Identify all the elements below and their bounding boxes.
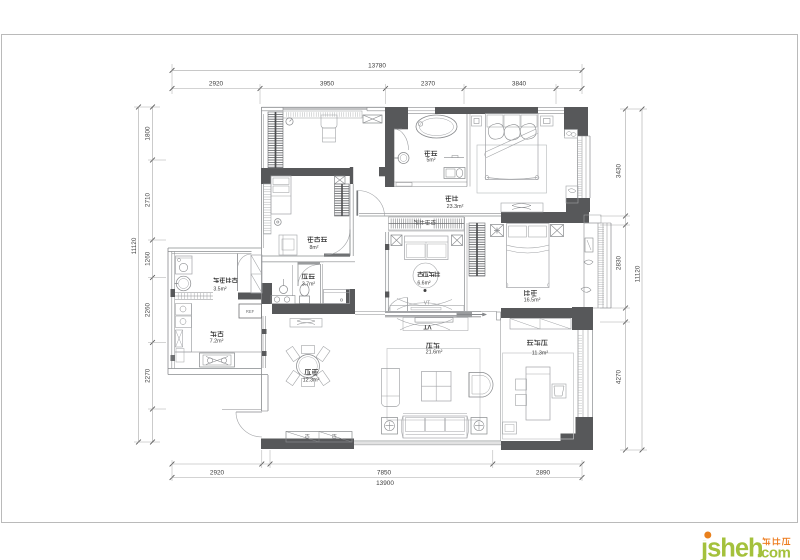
- svg-text:2830: 2830: [616, 255, 623, 270]
- svg-text:21.6m²: 21.6m²: [426, 350, 443, 356]
- svg-text:2920: 2920: [210, 470, 225, 477]
- svg-text:7.2m²: 7.2m²: [210, 339, 224, 345]
- svg-text:5m²: 5m²: [427, 158, 436, 164]
- svg-text:16.5m²: 16.5m²: [524, 298, 541, 304]
- svg-text:7850: 7850: [377, 470, 392, 477]
- svg-text:3840: 3840: [512, 81, 527, 88]
- svg-text:1260: 1260: [145, 251, 152, 266]
- svg-text:11120: 11120: [635, 265, 642, 282]
- svg-text:2890: 2890: [536, 470, 551, 477]
- svg-text:2270: 2270: [145, 368, 152, 383]
- svg-text:12.3m²: 12.3m²: [303, 378, 320, 384]
- svg-text:23.3m²: 23.3m²: [447, 204, 464, 210]
- svg-text:2710: 2710: [145, 192, 152, 207]
- svg-text:3.7m²: 3.7m²: [302, 282, 316, 288]
- svg-text:REF: REF: [246, 309, 255, 314]
- svg-text:6.6m²: 6.6m²: [417, 281, 431, 287]
- svg-text:2920: 2920: [209, 81, 224, 88]
- svg-text:com: com: [761, 545, 791, 560]
- svg-text:8m²: 8m²: [310, 245, 319, 251]
- svg-text:11.3m²: 11.3m²: [532, 351, 549, 357]
- svg-text:1800: 1800: [145, 126, 152, 141]
- svg-text:3950: 3950: [320, 81, 335, 88]
- svg-text:2370: 2370: [421, 81, 436, 88]
- svg-text:3430: 3430: [616, 163, 623, 178]
- svg-text:VT: VT: [424, 301, 430, 307]
- svg-text:13900: 13900: [376, 480, 394, 487]
- svg-text:4270: 4270: [616, 369, 623, 384]
- svg-text:2260: 2260: [145, 302, 152, 317]
- svg-text:3.5m²: 3.5m²: [213, 287, 227, 293]
- svg-text:VT: VT: [423, 323, 431, 330]
- svg-text:11120: 11120: [131, 237, 138, 254]
- svg-text:13780: 13780: [368, 63, 386, 70]
